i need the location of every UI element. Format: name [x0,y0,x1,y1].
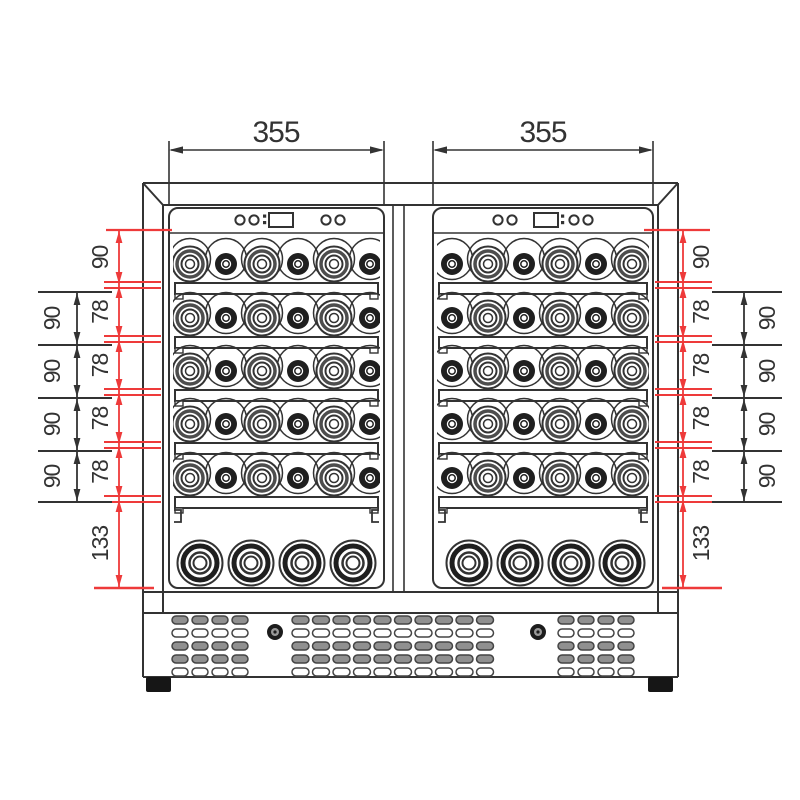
vent-slot [313,629,330,637]
dimension-arrow [169,146,183,153]
vent-slot [212,616,228,624]
dimension-arrow [741,452,748,464]
shelf-board [175,390,378,401]
bottle-neck [359,413,381,435]
bottle-neck [441,360,463,382]
vent-slot [618,655,634,663]
bottle-neck [585,467,607,489]
right-door-control-panel [493,213,592,227]
shelf-board [439,283,647,294]
bottle-neck [441,413,463,435]
vent-slot [395,616,412,624]
dimension-label: 78 [87,460,113,484]
vent-slot [192,629,208,637]
dimension-arrow [74,293,81,305]
bottle-neck [215,253,237,275]
vent-slot [354,655,371,663]
dimension-arrow [74,489,81,501]
vent-slot [232,629,248,637]
vent-slot [477,655,494,663]
vent-slot [172,629,188,637]
bottle-neck [585,253,607,275]
dimension-label: 78 [688,460,714,484]
dimension-arrow [74,332,81,344]
display-colon-mark [263,215,266,218]
vent-slot [333,668,350,676]
dimension-label: 78 [688,407,714,431]
shelf-row [170,293,391,336]
dimension-arrow [74,399,81,411]
control-button [335,215,344,224]
dimension-label: 90 [39,465,65,489]
bottle-neck [287,360,309,382]
temperature-display [534,213,558,227]
vent-slot [598,655,614,663]
vent-slot [436,629,453,637]
bottle-base [173,354,208,389]
bottle-base [471,301,506,336]
display-colon-mark [561,221,564,224]
bottle-base [173,301,208,336]
shelf-bracket [370,401,378,406]
vent-slot [374,616,391,624]
shelf-board [175,497,378,508]
vent-slot [313,655,330,663]
vent-slot [456,668,473,676]
dimension-label: 78 [87,407,113,431]
vent-slot [172,655,188,663]
dimension-label: 90 [688,246,714,270]
vent-slot [578,655,594,663]
left-door-interior [170,239,391,586]
dimension-label: 78 [87,354,113,378]
vent-slot [374,668,391,676]
vent-slot [578,629,594,637]
vent-grid-right [558,616,634,676]
top-dimension-right: 355 [519,116,566,149]
dimension-label: 133 [688,526,714,562]
vent-slot [192,668,208,676]
bottom-bin [174,510,379,586]
vent-slot [292,629,309,637]
vent-slot [436,642,453,650]
vent-slot [313,668,330,676]
bottle-neck [215,467,237,489]
vent-slot [333,655,350,663]
vent-slot [598,642,614,650]
control-button [583,215,592,224]
vent-slot [558,616,574,624]
vent-slot [578,668,594,676]
bottle-base [615,247,650,282]
vent-slot [477,629,494,637]
shelf-board [175,443,378,454]
bottle-neck [513,253,535,275]
vent-slot [618,668,634,676]
vent-slot [232,616,248,624]
vent-slot [578,616,594,624]
shelf-board [439,337,647,348]
bottle-base [543,461,578,496]
bottle-base [245,461,280,496]
vent-slot [618,616,634,624]
bottle-neck [287,467,309,489]
dimension-label: 90 [754,465,780,489]
vent-slot [333,629,350,637]
vent-slot [313,616,330,624]
vent-slot [395,668,412,676]
bottle-base [471,461,506,496]
vent-slot [456,616,473,624]
bottle-base [317,247,352,282]
dimension-arrow [639,146,653,153]
vent-slot [415,629,432,637]
bottle-base [245,301,280,336]
dimension-arrow [741,399,748,411]
shelf-row [170,453,391,496]
vent-slot [558,642,574,650]
top-dimensions: 355 355 [169,116,653,206]
shelf-board [175,283,378,294]
vent-slot [456,655,473,663]
vent-slot [354,629,371,637]
shelf-row [432,346,653,389]
dimension-label: 78 [87,300,113,324]
dimension-label: 90 [754,413,780,437]
bottle-base [245,354,280,389]
bottle-base [615,301,650,336]
vent-slot [598,629,614,637]
bottle-base [173,461,208,496]
vent-slot [172,616,188,624]
vent-slot [558,629,574,637]
right-black-dimension-chain: 90909090 [712,292,782,502]
vent-slot [415,616,432,624]
vent-slot [354,616,371,624]
vent-slot [354,642,371,650]
right-foot [648,677,673,692]
control-button [507,215,516,224]
bottle-neck [359,307,381,329]
bottle-neck [359,253,381,275]
vent-slot [415,655,432,663]
dimension-label: 90 [39,307,65,331]
shelf-bracket [370,348,378,353]
bottle-base [245,407,280,442]
left-door-control-panel [235,213,344,227]
bin-bottle [447,541,492,586]
dimension-label: 90 [754,307,780,331]
vent-slot [192,655,208,663]
bottle-neck [287,307,309,329]
vent-slot [172,668,188,676]
vent-slot [172,642,188,650]
vent-slot [578,642,594,650]
vent-slot [313,642,330,650]
shelf-row [432,453,653,496]
bottle-neck [441,307,463,329]
bottle-neck [585,307,607,329]
vent-slot [212,655,228,663]
bottle-base [317,407,352,442]
bottle-base [543,247,578,282]
bottle-neck [441,467,463,489]
bottle-base [317,301,352,336]
vent-slot [292,616,309,624]
bottle-base [615,461,650,496]
dimension-label: 90 [39,360,65,384]
dimension-label: 90 [39,413,65,437]
dimension-arrow [741,438,748,450]
bin-bottle [331,541,376,586]
dimension-label: 90 [754,360,780,384]
control-button [493,215,502,224]
dimension-arrow [74,438,81,450]
dimension-label: 78 [688,300,714,324]
bin-bottle [280,541,325,586]
vent-slot [212,629,228,637]
bottle-base [245,247,280,282]
bin-bottle [229,541,274,586]
vent-grid-left [172,616,248,676]
bottle-base [471,247,506,282]
vent-slot [333,642,350,650]
bottle-neck [585,360,607,382]
bottom-bin [438,510,648,586]
vent-slot [436,668,453,676]
shelf-bracket [370,294,378,299]
vent-slot [395,655,412,663]
vent-slot [558,655,574,663]
vent-slot [232,668,248,676]
dimension-arrow [74,452,81,464]
bottle-neck [513,360,535,382]
shelf-board [175,337,378,348]
vent-slot [354,668,371,676]
vent-slot [374,655,391,663]
vent-slot [436,616,453,624]
bottle-neck [585,413,607,435]
vent-slot [395,642,412,650]
left-foot [146,677,171,692]
shelf-row [170,399,391,442]
vent-slot [598,616,614,624]
control-button [569,215,578,224]
vent-slot [558,668,574,676]
vent-slot [192,616,208,624]
bottle-neck [513,413,535,435]
bottle-neck [215,413,237,435]
shelf-bracket [370,454,378,459]
vent-slot [232,642,248,650]
vent-grid-center [292,616,494,676]
shelf-row [432,293,653,336]
vent-slot [436,655,453,663]
wine-cooler-technical-drawing: 9078787878133907878787813390909090909090… [0,0,800,800]
dimension-arrow [741,346,748,358]
bottle-base [317,461,352,496]
vent-slot [374,629,391,637]
bottle-neck [359,360,381,382]
vent-slot [598,668,614,676]
display-colon-mark [263,221,266,224]
vent-slot [456,642,473,650]
right-door-interior [432,239,653,586]
bottle-base [471,354,506,389]
vent-slot [292,655,309,663]
dimension-label: 78 [688,354,714,378]
display-colon-mark [561,215,564,218]
dimension-arrow [741,385,748,397]
dimension-arrow [116,231,123,243]
vent-slot [395,629,412,637]
shelf-row [170,239,391,282]
control-button [235,215,244,224]
dimension-arrow [680,231,687,243]
vent-slot [232,655,248,663]
dimension-arrow [741,332,748,344]
dimension-arrow [680,575,687,587]
bottle-neck [287,253,309,275]
shelf-row [432,399,653,442]
drawing-canvas: 9078787878133907878787813390909090909090… [0,0,800,800]
dimension-arrow [116,575,123,587]
shelf-board [439,443,647,454]
vent-slot [292,668,309,676]
bottle-neck [359,467,381,489]
dimension-arrow [370,146,384,153]
vent-slot [212,668,228,676]
bottle-base [317,354,352,389]
temperature-display [269,213,293,227]
bottle-base [615,407,650,442]
dimension-label: 90 [87,246,113,270]
bottle-neck [215,360,237,382]
bin-bottle [498,541,543,586]
vent-slot [374,642,391,650]
dimension-arrow [741,293,748,305]
bottle-base [543,301,578,336]
dimension-arrow [74,346,81,358]
vent-grille [172,616,634,676]
dimension-arrow [741,489,748,501]
vent-slot [477,642,494,650]
bottle-base [543,407,578,442]
vent-slot [618,642,634,650]
bottle-neck [513,307,535,329]
top-dimension-left: 355 [252,116,299,149]
vent-slot [333,616,350,624]
dimension-arrow [433,146,447,153]
bottle-base [173,407,208,442]
bottle-base [471,407,506,442]
vent-slot [618,629,634,637]
screw-icon [267,624,283,640]
bottle-base [173,247,208,282]
bottle-neck [287,413,309,435]
vent-slot [477,616,494,624]
right-red-dimension-chain: 9078787878133 [644,230,722,588]
screw-icon [530,624,546,640]
shelf-board [439,390,647,401]
bin-bottle [178,541,223,586]
bottle-base [543,354,578,389]
control-button [321,215,330,224]
shelf-board [439,497,647,508]
vent-slot [415,642,432,650]
control-button [249,215,258,224]
bin-bottle [600,541,645,586]
vent-slot [477,668,494,676]
bottle-neck [215,307,237,329]
bottle-neck [441,253,463,275]
bin-bottle [549,541,594,586]
left-red-dimension-chain: 9078787878133 [87,230,172,588]
vent-slot [415,668,432,676]
bottle-base [615,354,650,389]
shelf-row [432,239,653,282]
vent-slot [212,642,228,650]
vent-slot [456,629,473,637]
dimension-label: 133 [87,526,113,562]
shelf-row [170,346,391,389]
bottle-neck [513,467,535,489]
vent-slot [192,642,208,650]
dimension-arrow [74,385,81,397]
vent-slot [292,642,309,650]
